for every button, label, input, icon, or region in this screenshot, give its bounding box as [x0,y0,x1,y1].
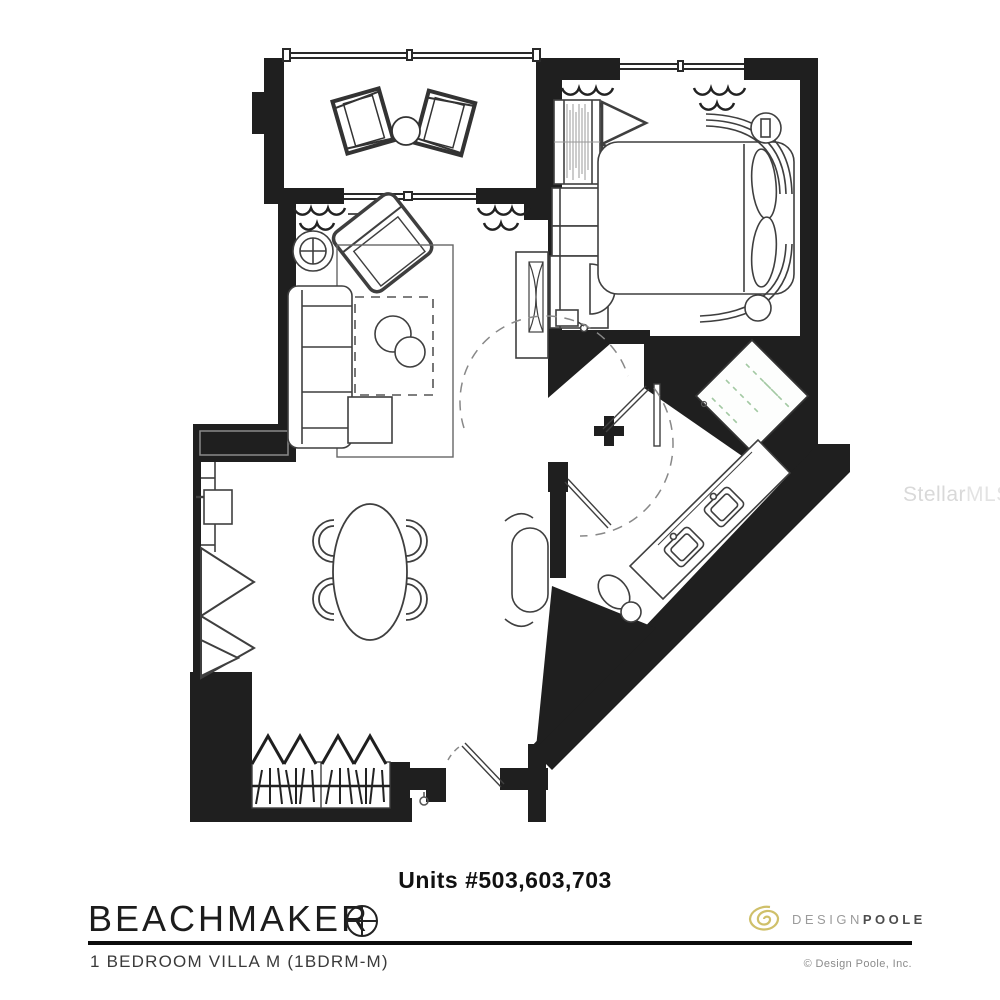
wall-toilet-partition [550,478,566,578]
wall-bath-cross-jamb-b [604,416,614,446]
wall-balcony-living-left [264,188,344,204]
lounge-chair-icon [505,514,548,627]
designer-name-part1: DESIGN [792,912,863,927]
closet-hanging-icon [554,100,600,184]
curtain-bedroom-right [694,88,745,110]
footer-divider [88,941,912,945]
railing-mid-tick [407,50,412,60]
wall-closet-jamb [390,762,410,812]
watermark: StellarMLS [903,483,1000,507]
balcony-table-icon [392,117,420,145]
dining-area [313,504,548,640]
minibar-icon [196,490,232,524]
designer-name-part2: POOLE [863,912,926,927]
wall-left-chunk [190,672,252,818]
railing-cap-left [283,49,290,61]
units-label: Units #503,603,703 [255,867,755,894]
entry-door-leaf [462,743,504,787]
watermark-part1: Stellar [903,483,966,506]
toilet-door-leaf [565,479,611,528]
sofa-icon [288,286,352,448]
bedroom [550,100,794,332]
balcony [332,88,475,155]
floorplan-page: Units #503,603,703 BEACHMAKER 1 BEDROOM … [0,0,1000,1000]
closet-bifold-icon [252,736,386,764]
side-table-icon [293,231,333,271]
compass-icon [344,903,380,939]
dining-table-icon [333,504,407,640]
window-mid-tick [678,61,683,71]
curtain-living-left [294,208,345,230]
wall-bedroom-top-left [548,58,620,80]
balcony-chair-right-icon [415,91,475,156]
wall-entry-bar-left [408,768,446,790]
spiral-icon [744,902,784,936]
dresser-icon [552,188,600,256]
wall-hall-jamb2 [548,462,568,492]
balcony-chair-left-icon [332,88,393,153]
wall-balcony-left-post [264,58,284,204]
curtain-living-right [478,208,529,230]
louver-doors-icon [201,548,254,678]
ottoman-icon [348,397,392,443]
sliding-door-tab [404,192,412,200]
unit-type-label: 1 BEDROOM VILLA M (1BDRM-M) [90,952,389,972]
armchair-icon [330,190,435,295]
wall-hall-jamb-triangle [548,344,610,398]
railing-cap-right [533,49,540,61]
kitchenette [196,462,254,678]
coffee-table-small-icon [395,337,425,367]
tv-console-icon [516,252,548,358]
wall-balcony-left-nub [252,92,264,134]
designer-copyright: © Design Poole, Inc. [804,958,912,970]
wall-bedroom-bottom [548,330,650,344]
kitchen-band-counter [200,431,288,455]
wall-entry-bar-right [500,768,548,790]
watermark-part2: MLS [966,483,1000,506]
wall-left-thin [193,462,201,674]
wall-entry-step [426,790,446,802]
floor-plan [0,0,1000,1000]
designer-logo: DESIGN POOLE [744,902,926,936]
nightstand-bottom-icon [745,295,771,321]
bed-icon [598,113,794,322]
building-name: BEACHMAKER [88,898,370,940]
